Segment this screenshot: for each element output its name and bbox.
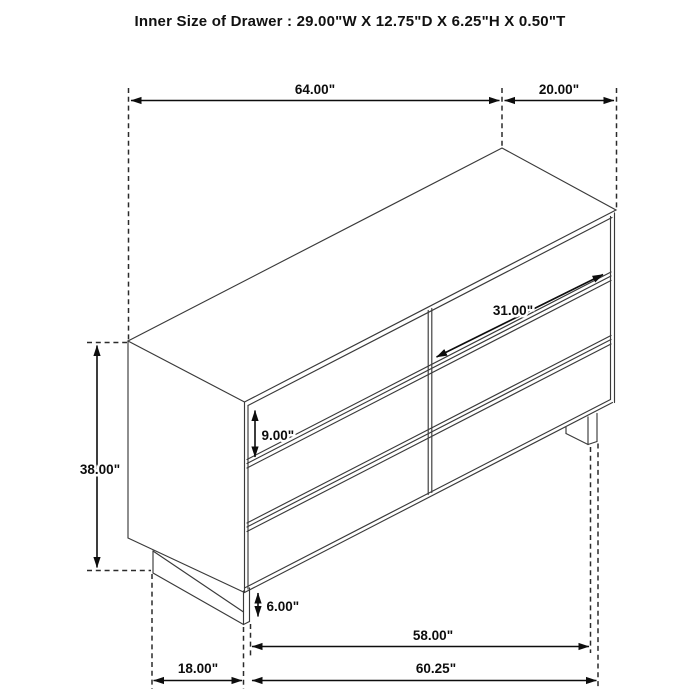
drawer-width-label: 31.00" <box>493 303 533 318</box>
dimension-drawer-height: 9.00" <box>255 411 294 458</box>
top-depth-label: 20.00" <box>539 82 579 97</box>
dimension-bottom-depth: 18.00" <box>154 661 243 681</box>
dimension-top-depth: 20.00" <box>505 82 615 101</box>
dimension-leg-span: 58.00" <box>252 628 589 647</box>
base-height-label: 6.00" <box>267 599 300 614</box>
dimension-bottom: 58.00" 60.25" 18.00" <box>152 444 598 690</box>
drawer-divider <box>428 309 432 495</box>
bottom-depth-label: 18.00" <box>178 661 218 676</box>
dimension-overall-bottom-width: 60.25" <box>252 661 597 681</box>
overall-bottom-width-label: 60.25" <box>416 661 456 676</box>
top-width-label: 64.00" <box>295 82 335 97</box>
dimension-base-height: 6.00" <box>258 593 299 617</box>
leg-span-label: 58.00" <box>413 628 453 643</box>
dresser-top-face <box>128 148 616 402</box>
dresser-line-drawing: 64.00" 20.00" 38.00" 31.00" 9.00" 6.00" <box>0 0 700 700</box>
dimension-overall-height: 38.00" <box>80 343 151 571</box>
drawer-height-label: 9.00" <box>262 428 295 443</box>
dresser <box>128 148 616 625</box>
dresser-dimension-diagram: Inner Size of Drawer : 29.00"W X 12.75"D… <box>0 0 700 700</box>
overall-height-label: 38.00" <box>80 462 120 477</box>
